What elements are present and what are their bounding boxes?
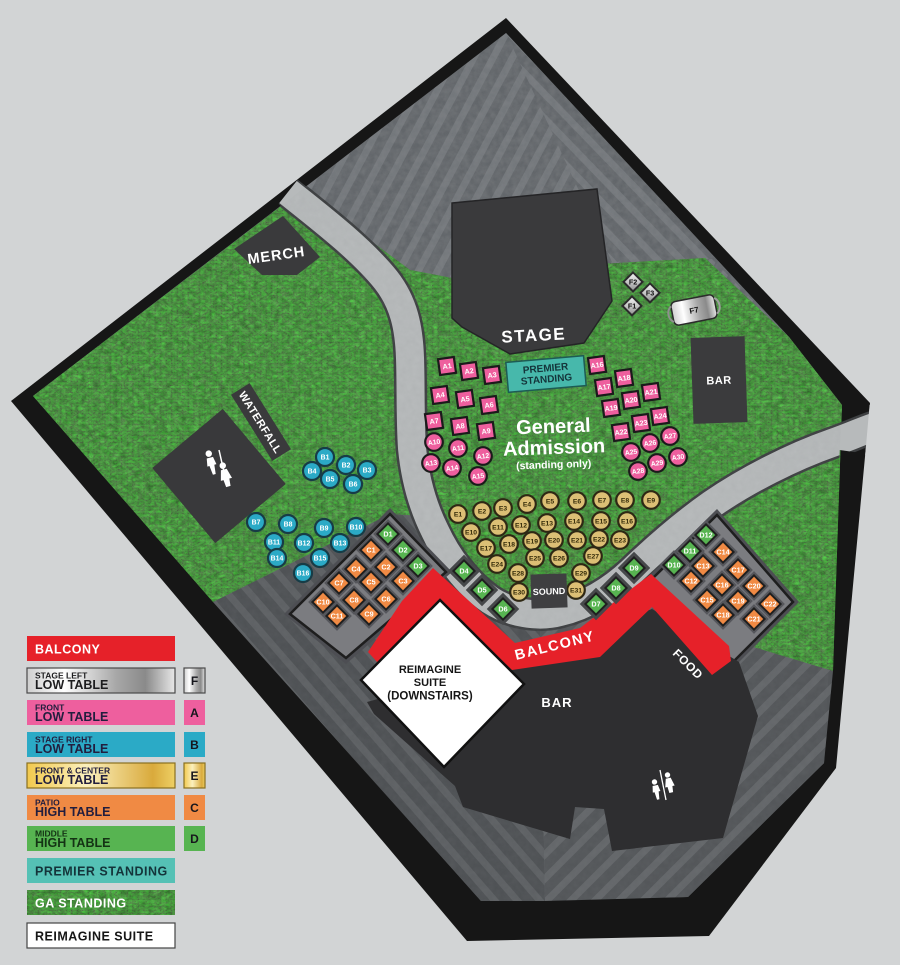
svg-text:E28: E28 [512,570,524,577]
svg-text:E21: E21 [571,537,583,544]
svg-text:D7: D7 [591,600,600,609]
svg-text:E29: E29 [575,570,587,577]
svg-text:B4: B4 [308,469,317,476]
svg-text:LOW TABLE: LOW TABLE [35,710,108,724]
svg-text:A3: A3 [487,370,497,380]
svg-text:A1: A1 [442,361,452,371]
svg-text:B7: B7 [252,520,261,527]
svg-text:E25: E25 [529,555,541,562]
svg-text:A18: A18 [617,373,631,384]
svg-text:D9: D9 [629,564,638,573]
svg-text:E: E [190,769,198,783]
svg-text:E30: E30 [513,589,525,596]
svg-text:A16: A16 [590,360,604,371]
svg-text:B15: B15 [314,556,327,563]
svg-text:C10: C10 [316,598,329,607]
svg-text:LOW TABLE: LOW TABLE [35,742,108,756]
svg-text:B16: B16 [297,571,310,578]
svg-text:C12: C12 [684,577,697,586]
svg-text:E11: E11 [492,524,504,531]
svg-text:E6: E6 [573,498,582,505]
svg-text:C22: C22 [763,600,776,609]
svg-text:C1: C1 [366,546,375,555]
svg-text:C7: C7 [334,579,343,588]
svg-text:HIGH TABLE: HIGH TABLE [35,836,110,850]
svg-text:C9: C9 [364,610,373,619]
svg-text:PREMIER STANDING: PREMIER STANDING [35,865,168,879]
svg-text:E24: E24 [491,561,503,568]
svg-text:F3: F3 [646,289,654,298]
svg-text:E8: E8 [621,497,630,504]
svg-text:A5: A5 [460,394,470,404]
svg-text:A6: A6 [484,400,494,410]
svg-text:E22: E22 [593,536,605,543]
svg-text:C17: C17 [731,566,744,575]
svg-text:F2: F2 [629,278,637,287]
svg-text:E9: E9 [647,497,656,504]
svg-text:B2: B2 [342,463,351,470]
svg-text:C3: C3 [398,577,407,586]
svg-text:E12: E12 [515,522,527,529]
svg-text:A9: A9 [481,426,491,436]
svg-text:A19: A19 [604,403,618,414]
svg-text:SOUND: SOUND [533,586,566,597]
svg-text:E4: E4 [523,501,532,508]
svg-text:D5: D5 [477,586,486,595]
svg-text:D12: D12 [699,531,712,540]
svg-text:E19: E19 [526,538,538,545]
svg-text:SUITE: SUITE [414,677,446,689]
svg-text:A4: A4 [435,390,445,400]
svg-text:E5: E5 [546,498,555,505]
svg-text:D11: D11 [684,547,697,556]
svg-text:E1: E1 [454,511,463,518]
svg-text:B12: B12 [298,541,311,548]
svg-text:E10: E10 [465,529,477,536]
svg-text:A24: A24 [653,411,667,422]
svg-text:D4: D4 [459,567,468,576]
svg-text:E26: E26 [553,555,565,562]
svg-text:C8: C8 [349,596,358,605]
svg-text:HIGH TABLE: HIGH TABLE [35,805,110,819]
svg-text:C: C [190,801,199,815]
svg-text:BAR: BAR [706,375,732,388]
svg-text:B: B [190,738,199,752]
svg-text:BALCONY: BALCONY [35,643,100,657]
svg-text:C19: C19 [731,597,744,606]
svg-text:E3: E3 [499,505,508,512]
svg-text:E7: E7 [598,497,607,504]
svg-text:A: A [190,706,199,720]
svg-text:A17: A17 [597,382,611,393]
svg-text:A20: A20 [624,395,638,406]
svg-text:D8: D8 [611,584,620,593]
svg-text:E31: E31 [570,587,582,594]
svg-text:D6: D6 [498,605,507,614]
svg-text:D1: D1 [383,530,392,539]
svg-text:STAGE: STAGE [501,324,567,346]
svg-text:A23: A23 [634,418,648,429]
svg-text:C14: C14 [716,548,729,557]
svg-text:E27: E27 [587,553,599,560]
svg-text:E17: E17 [480,545,492,552]
svg-text:REIMAGINE: REIMAGINE [399,664,461,676]
svg-text:B6: B6 [349,482,358,489]
svg-text:E20: E20 [548,537,560,544]
svg-text:C5: C5 [366,578,375,587]
svg-text:E23: E23 [614,537,626,544]
svg-text:A7: A7 [429,416,439,426]
svg-text:A22: A22 [614,427,628,438]
svg-text:C20: C20 [747,582,760,591]
svg-text:B13: B13 [334,541,347,548]
svg-text:BAR: BAR [541,695,572,710]
svg-text:REIMAGINE SUITE: REIMAGINE SUITE [35,930,154,944]
svg-text:D2: D2 [398,546,407,555]
svg-text:C13: C13 [696,562,709,571]
svg-text:(DOWNSTAIRS): (DOWNSTAIRS) [387,691,473,703]
svg-text:F1: F1 [628,302,636,311]
svg-text:B3: B3 [363,468,372,475]
svg-text:LOW TABLE: LOW TABLE [35,678,108,692]
svg-text:C4: C4 [351,565,360,574]
svg-text:B9: B9 [320,526,329,533]
svg-text:C6: C6 [381,595,390,604]
svg-text:A8: A8 [455,421,465,431]
svg-text:D: D [190,832,199,846]
svg-text:A21: A21 [644,387,658,398]
svg-text:B1: B1 [321,455,330,462]
svg-text:D3: D3 [413,562,422,571]
svg-text:C2: C2 [381,563,390,572]
svg-text:B8: B8 [284,522,293,529]
svg-text:E15: E15 [595,518,607,525]
svg-text:A2: A2 [464,366,474,376]
svg-text:GA STANDING: GA STANDING [35,897,127,911]
svg-text:B5: B5 [326,477,335,484]
svg-text:E2: E2 [478,508,487,515]
svg-text:B10: B10 [350,525,363,532]
svg-text:C15: C15 [700,596,713,605]
svg-text:C21: C21 [747,615,760,624]
svg-text:C18: C18 [716,611,729,620]
svg-text:D10: D10 [667,561,680,570]
svg-text:B11: B11 [268,540,280,547]
svg-text:B14: B14 [271,556,284,563]
svg-text:C11: C11 [331,612,344,621]
svg-text:E13: E13 [541,520,553,527]
svg-text:E16: E16 [621,518,633,525]
svg-text:F: F [191,674,198,688]
svg-text:E18: E18 [503,541,515,548]
svg-text:LOW TABLE: LOW TABLE [35,773,108,787]
svg-text:C16: C16 [715,581,728,590]
svg-text:E14: E14 [568,518,580,525]
